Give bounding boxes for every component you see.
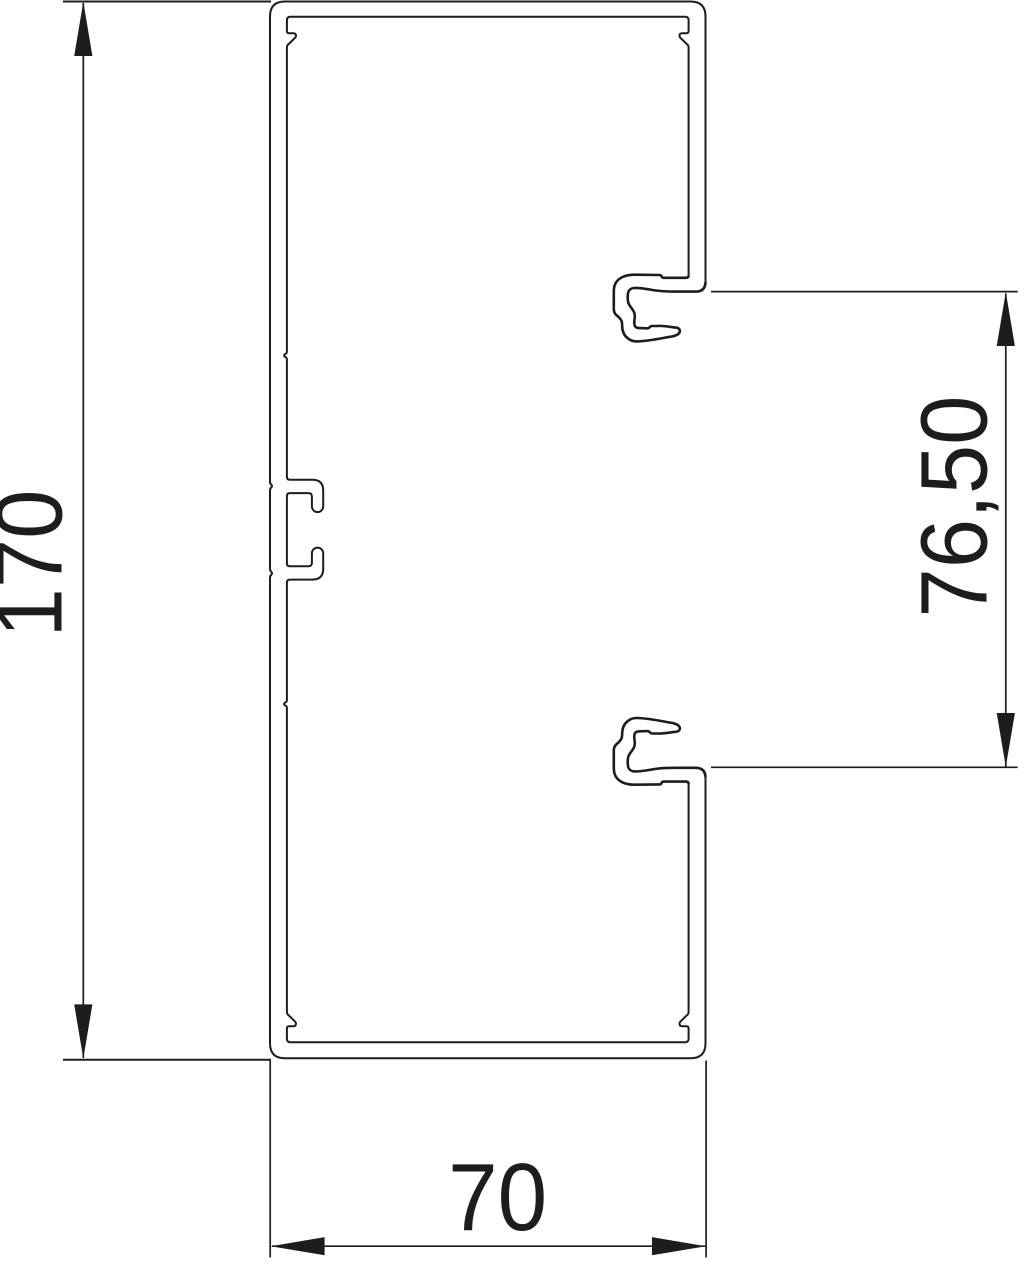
svg-text:170: 170 <box>0 490 82 638</box>
svg-text:76,50: 76,50 <box>901 396 1007 618</box>
svg-text:70: 70 <box>448 1144 547 1251</box>
